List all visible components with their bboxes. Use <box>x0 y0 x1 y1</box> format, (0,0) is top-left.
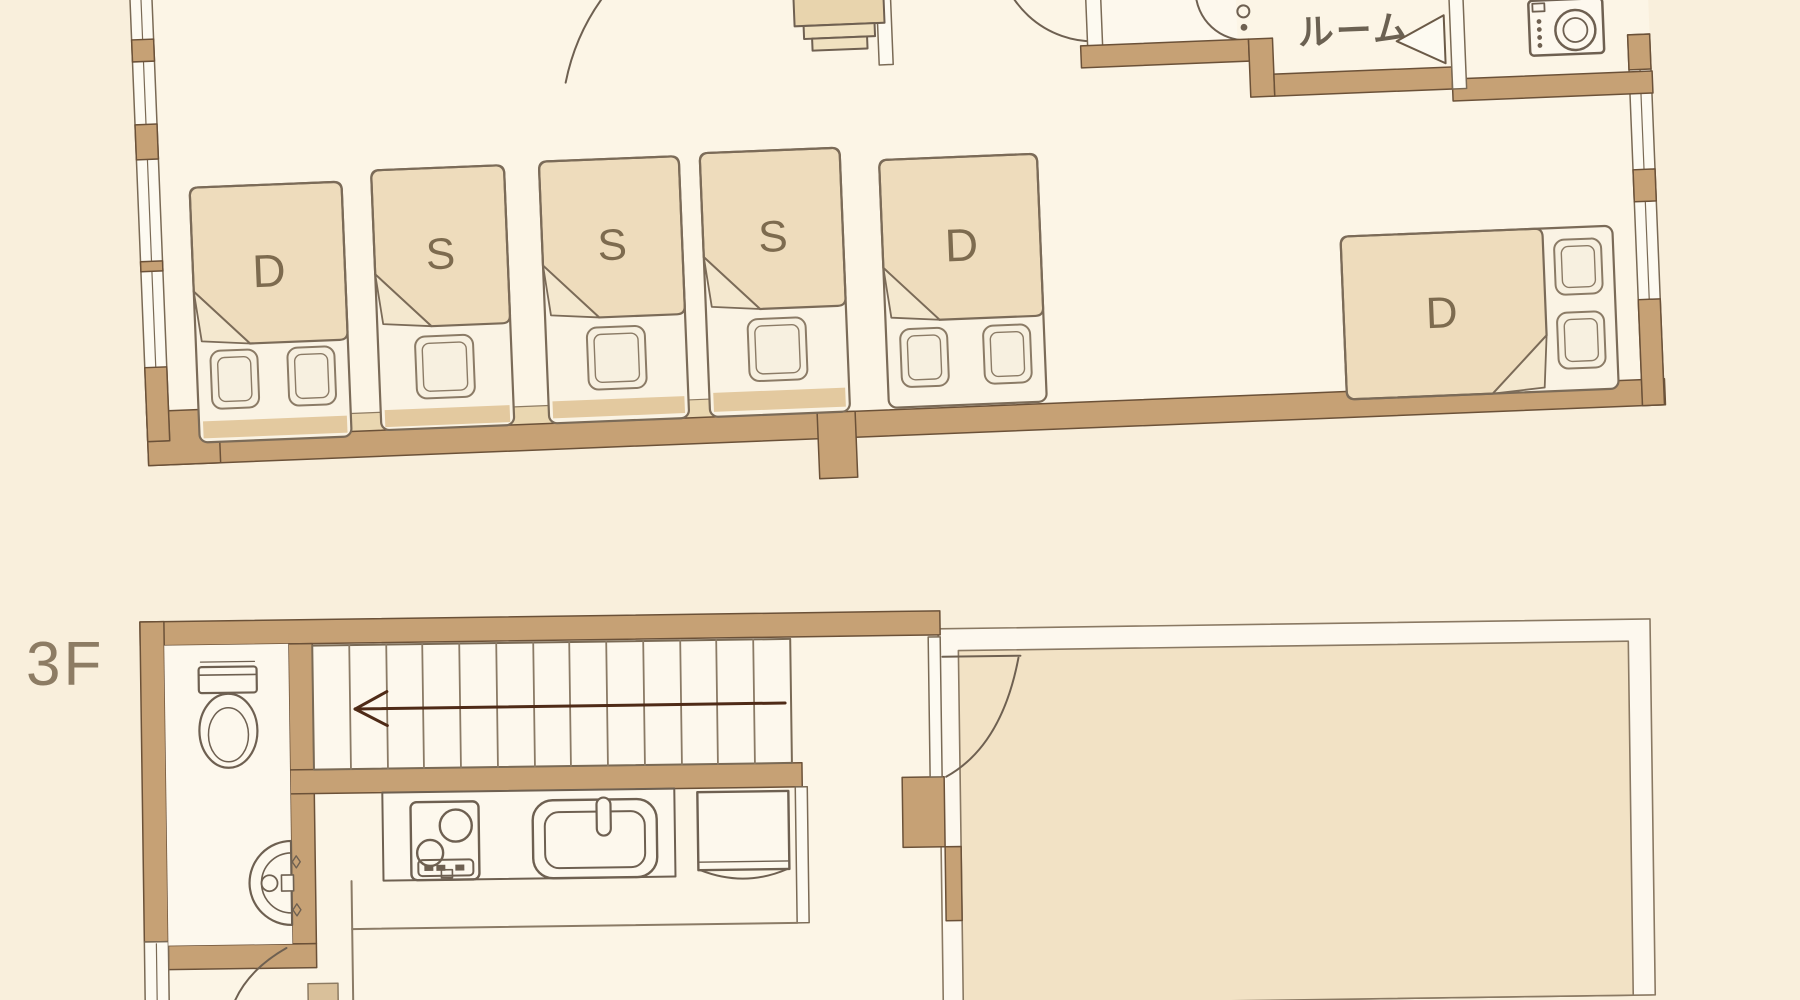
bed-4-single: S <box>700 148 850 417</box>
stove-icon <box>410 801 479 880</box>
wall-toilet-bottom <box>168 944 316 970</box>
bed-label: S <box>757 212 788 262</box>
bed-label: D <box>251 244 286 297</box>
washing-machine-icon <box>1528 0 1604 56</box>
bed-label: D <box>1425 288 1459 338</box>
bed-label: S <box>425 229 456 279</box>
lower-floor-plan <box>140 601 1655 1000</box>
bed-label: D <box>944 218 979 271</box>
pillow-icon <box>747 317 807 381</box>
pillow-icon <box>587 326 647 390</box>
floor-plan-drawing: ルーム <box>0 0 1800 1000</box>
kitchen-counter <box>382 789 675 881</box>
wall-block <box>902 777 945 848</box>
bed-1-double: D <box>190 182 352 443</box>
bed-6-double: D <box>1340 226 1618 400</box>
partition-wall <box>795 787 809 923</box>
stairs-icon <box>312 639 792 770</box>
toilet-icon <box>198 661 257 768</box>
refrigerator-icon <box>697 791 789 879</box>
bed-2-single: S <box>371 165 514 430</box>
wall-block <box>945 847 962 921</box>
pillow-icon <box>415 335 475 399</box>
living-room <box>938 619 1655 1000</box>
wall-left <box>140 622 168 942</box>
toilet-room <box>164 644 301 946</box>
window-icon <box>144 942 169 1000</box>
bed-3-single: S <box>539 156 689 423</box>
bed-label: S <box>597 220 628 270</box>
floor-plan-page: ルーム <box>0 0 1800 1000</box>
sink-icon <box>532 797 657 879</box>
bed-5-double: D <box>879 154 1047 408</box>
utility-room-label: ルーム <box>1297 8 1411 53</box>
upper-floor-plan: ルーム <box>128 0 1667 506</box>
floor-label: 3F <box>26 634 104 696</box>
